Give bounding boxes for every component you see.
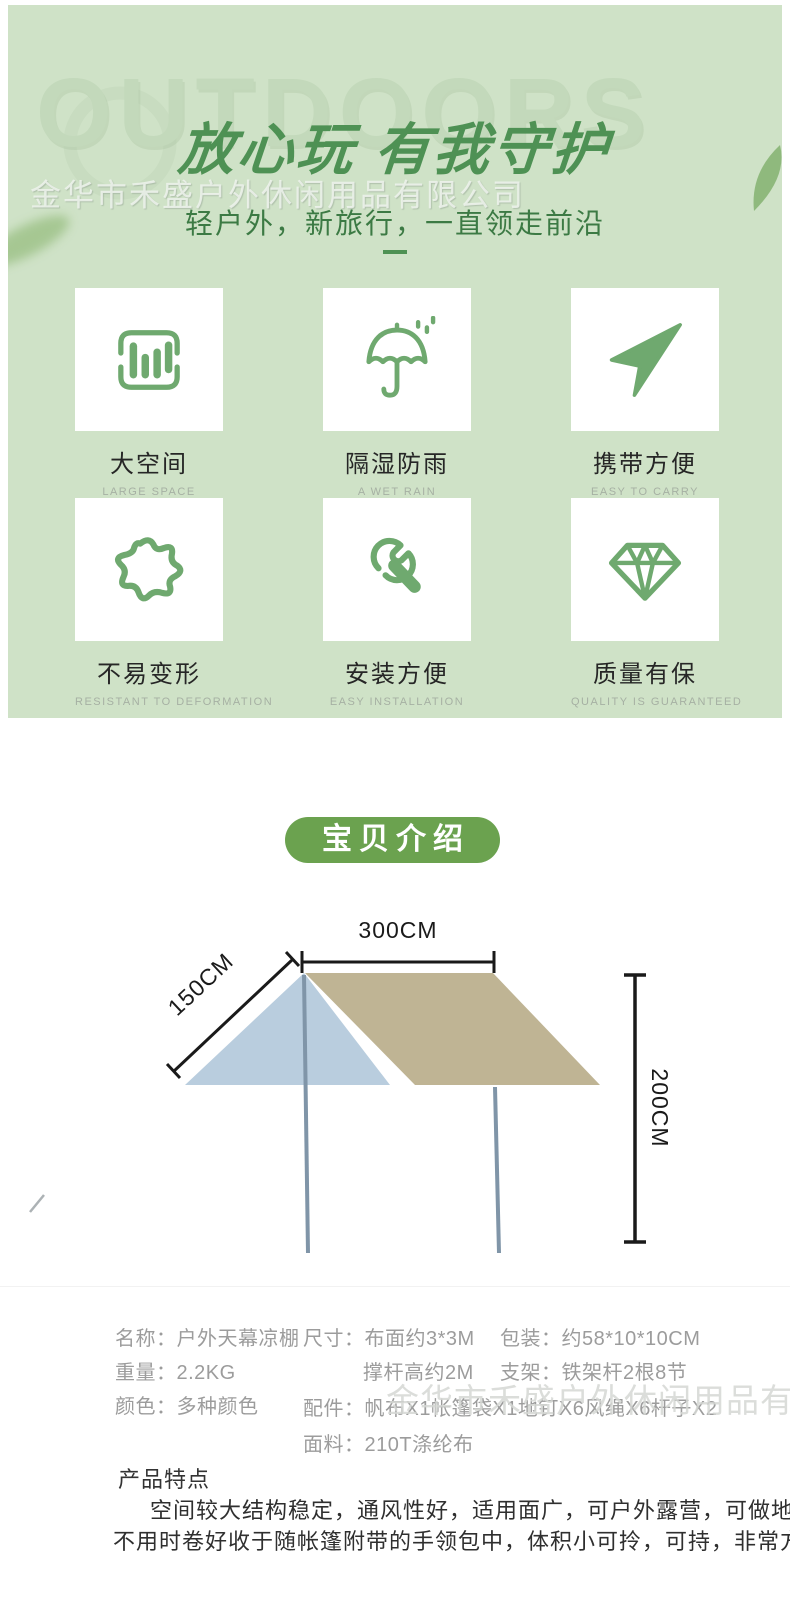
product-features-line2: 不用时卷好收于随帐篷附带的手领包中，体积小可拎，可持，非常方便 [113, 1524, 790, 1556]
spec-color: 颜色：多种颜色 [115, 1390, 259, 1419]
feature-subtitle-en: EASY TO CARRY [571, 486, 719, 498]
section-divider [0, 1286, 790, 1287]
feature-icon-box [323, 288, 471, 431]
leaf-decoration-right [736, 145, 782, 217]
intro-section-button: 宝贝介绍 [285, 817, 500, 863]
stray-mark [30, 1195, 44, 1212]
company-watermark: 金华市禾盛户外休闲用品有限公司 [386, 1374, 790, 1422]
navigation-arrow-icon [601, 316, 689, 404]
spec-name: 名称：户外天幕凉棚 [115, 1322, 300, 1351]
spec-package: 包装：约58*10*10CM [500, 1322, 700, 1351]
feature-title: 携带方便 [571, 444, 719, 479]
leaf-decoration-left [8, 197, 88, 281]
feature-subtitle-en: A WET RAIN [323, 486, 471, 498]
features-row-1: 大空间 LARGE SPACE 隔湿防雨 A WET RAIN [8, 288, 782, 498]
feature-subtitle-en: QUALITY IS GUARANTEED [571, 696, 719, 708]
feature-title: 隔湿防雨 [323, 444, 471, 479]
feature-title: 质量有保 [571, 654, 719, 689]
hero-subtitle: 轻户外，新旅行，一直领走前沿 [8, 202, 782, 242]
wrench-icon [353, 526, 441, 614]
feature-icon-box [571, 288, 719, 431]
feature-subtitle-en: RESISTANT TO DEFORMATION [75, 696, 223, 708]
feature-icon-box [571, 498, 719, 641]
product-detail-page: OUTDOORS 放心玩 有我守护 金华市禾盛户外休闲用品有限公司 轻户外，新旅… [0, 0, 790, 1599]
feature-subtitle-en: EASY INSTALLATION [323, 696, 471, 708]
feature-card: 隔湿防雨 A WET RAIN [323, 288, 471, 498]
feature-icon-box [75, 288, 223, 431]
feature-icon-box [323, 498, 471, 641]
spec-size: 尺寸：布面约3*3M [303, 1322, 475, 1351]
feature-title: 不易变形 [75, 654, 223, 689]
feature-title: 安装方便 [323, 654, 471, 689]
spec-weight: 重量：2.2KG [115, 1356, 236, 1385]
product-features-heading: 产品特点 [118, 1462, 210, 1494]
feature-icon-box [75, 498, 223, 641]
divider-dash [383, 250, 407, 254]
slope-dimension-label: 150CM [163, 948, 239, 1021]
feature-card: 质量有保 QUALITY IS GUARANTEED [571, 498, 719, 708]
features-row-2: 不易变形 RESISTANT TO DEFORMATION 安装方便 EASY … [8, 498, 782, 708]
tarp-pole-right [495, 1087, 499, 1253]
feature-card: 安装方便 EASY INSTALLATION [323, 498, 471, 708]
feature-card: 大空间 LARGE SPACE [75, 288, 223, 498]
spec-fabric: 面料：210T涤纶布 [303, 1428, 474, 1457]
product-features-line1: 空间较大结构稳定，通风性好，适用面广，可户外露营，可做地席! [150, 1493, 790, 1525]
feature-subtitle-en: LARGE SPACE [75, 486, 223, 498]
width-dimension [302, 951, 494, 973]
height-dimension-label: 200CM [647, 1068, 673, 1147]
hero-section: OUTDOORS 放心玩 有我守护 金华市禾盛户外休闲用品有限公司 轻户外，新旅… [8, 5, 782, 718]
blob-icon [105, 526, 193, 614]
feature-card: 不易变形 RESISTANT TO DEFORMATION [75, 498, 223, 708]
height-dimension [624, 975, 646, 1242]
umbrella-icon [353, 316, 441, 404]
bar-chart-icon [105, 316, 193, 404]
feature-title: 大空间 [75, 444, 223, 479]
diamond-icon [601, 526, 689, 614]
width-dimension-label: 300CM [358, 917, 437, 943]
feature-card: 携带方便 EASY TO CARRY [571, 288, 719, 498]
tarp-diagram: 300CM 150CM 200CM [0, 890, 790, 1265]
